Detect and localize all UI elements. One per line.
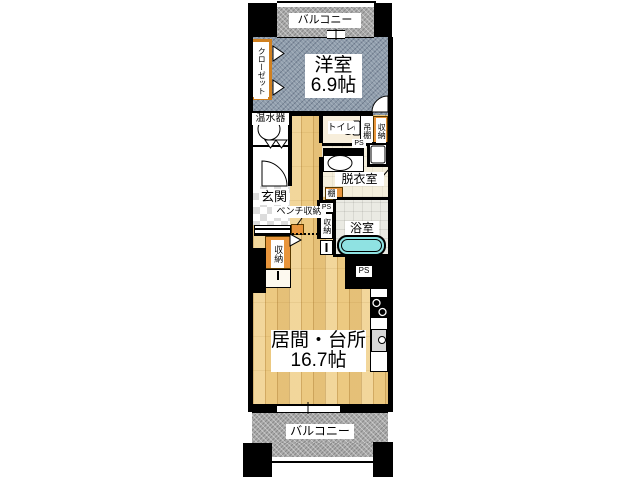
wall-bath-left xyxy=(333,197,336,257)
storage-mid-label: 収納 xyxy=(321,214,332,238)
wall-top-left-block xyxy=(248,3,277,37)
wall-left-lower xyxy=(248,293,253,408)
washing-machine xyxy=(367,142,389,167)
bench-storage-label: ベンチ収納 xyxy=(272,206,326,218)
wall-bottom-right xyxy=(340,404,393,412)
washstand-counter xyxy=(323,155,364,172)
closet-label: クローゼット xyxy=(254,42,268,99)
living-balcony-window xyxy=(277,404,340,413)
corridor-dotted-line xyxy=(288,233,318,235)
bedroom-name: 洋室 xyxy=(314,56,352,76)
wall-bath-bottom xyxy=(333,254,388,257)
balcony-bottom-floor-lower xyxy=(272,443,373,457)
shelf-label: 棚 xyxy=(326,189,337,199)
wall-bath-top xyxy=(333,197,388,200)
wall-left-thick xyxy=(248,248,266,293)
wall-top-right-block xyxy=(374,3,392,37)
balcony-top-railing xyxy=(277,1,376,7)
wall-left xyxy=(248,37,253,248)
dressing-room-label: 脱衣室 xyxy=(335,172,384,186)
living-kitchen-size: 16.7帖 xyxy=(291,351,347,371)
entrance-step xyxy=(254,225,291,236)
storage-top-right-label: 収納 xyxy=(376,118,386,143)
entrance-label: 玄関 xyxy=(259,189,289,205)
kitchen-sink xyxy=(371,329,387,352)
bedroom-size: 6.9帖 xyxy=(311,76,356,96)
living-kitchen-name: 居間・台所 xyxy=(271,331,366,351)
stove xyxy=(371,297,387,318)
wall-bottom-left xyxy=(248,404,277,412)
balcony-top-label: バルコニー xyxy=(289,13,361,28)
balcony-bottom-label: バルコニー xyxy=(286,424,354,439)
living-kitchen-label: 居間・台所 16.7帖 xyxy=(271,330,366,372)
water-heater-label: 温水器 xyxy=(252,113,289,125)
wall-corridor-left xyxy=(289,116,292,186)
bathroom-label: 浴室 xyxy=(345,221,379,235)
ps-label-1: PS xyxy=(352,139,366,148)
bedroom-label: 洋室 6.9帖 xyxy=(305,54,362,98)
balcony-bottom-railing xyxy=(272,457,373,463)
bedroom-balcony-window xyxy=(327,30,345,39)
wall-bedroom-bottom xyxy=(290,111,373,116)
wall-right xyxy=(388,37,393,412)
storage-left-label: 収納 xyxy=(271,240,284,268)
washstand-backsplash xyxy=(323,148,364,155)
wall-bottom-left-block xyxy=(243,443,272,477)
shoe-cabinet-handle xyxy=(277,271,279,280)
ps-label-2: PS xyxy=(320,203,333,212)
entrance-porch xyxy=(251,147,290,186)
ps-label-3: PS xyxy=(356,266,372,277)
floorplan-canvas: バルコニー 洋室 6.9帖 クローゼット 温水器 トイレ 吊棚 収納 PS 脱衣… xyxy=(0,0,640,480)
toilet-label: トイレ xyxy=(328,121,354,134)
wall-corridor-right-a xyxy=(319,116,323,143)
wall-bottom-right-block xyxy=(373,442,393,477)
